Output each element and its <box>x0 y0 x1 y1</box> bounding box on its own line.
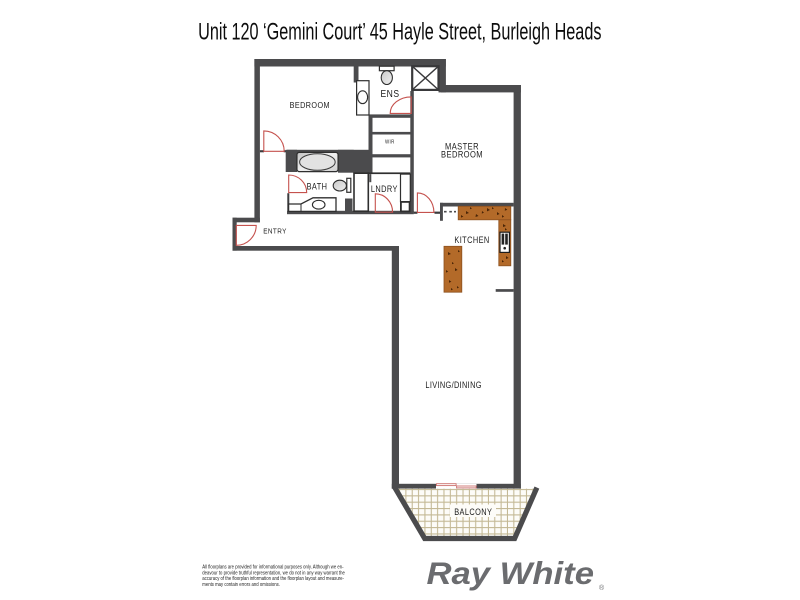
svg-text:WIR: WIR <box>385 139 395 145</box>
svg-text:ments may contain errors and o: ments may contain errors and omissions. <box>202 582 280 589</box>
svg-text:BEDROOM: BEDROOM <box>290 100 330 110</box>
svg-text:BATH: BATH <box>307 182 328 192</box>
svg-text:Unit 120 ‘Gemini Court’ 45 Hay: Unit 120 ‘Gemini Court’ 45 Hayle Street,… <box>198 20 601 46</box>
svg-text:All floorplans are provided fo: All floorplans are provided for informat… <box>202 564 344 571</box>
svg-text:LNDRY: LNDRY <box>371 185 398 195</box>
svg-text:LIVING/DINING: LIVING/DINING <box>425 380 481 390</box>
svg-text:ENTRY: ENTRY <box>263 228 287 236</box>
svg-text:BALCONY: BALCONY <box>454 507 492 517</box>
svg-text:deavour to provide truthful re: deavour to provide truthful representati… <box>202 570 345 577</box>
svg-text:Ray White: Ray White <box>427 556 594 591</box>
svg-text:®: ® <box>599 584 605 592</box>
svg-text:ENS: ENS <box>380 87 399 99</box>
svg-text:accuracy of the floorplan info: accuracy of the floorplan information an… <box>202 576 344 583</box>
svg-text:BEDROOM: BEDROOM <box>441 149 483 160</box>
svg-text:KITCHEN: KITCHEN <box>454 236 489 246</box>
